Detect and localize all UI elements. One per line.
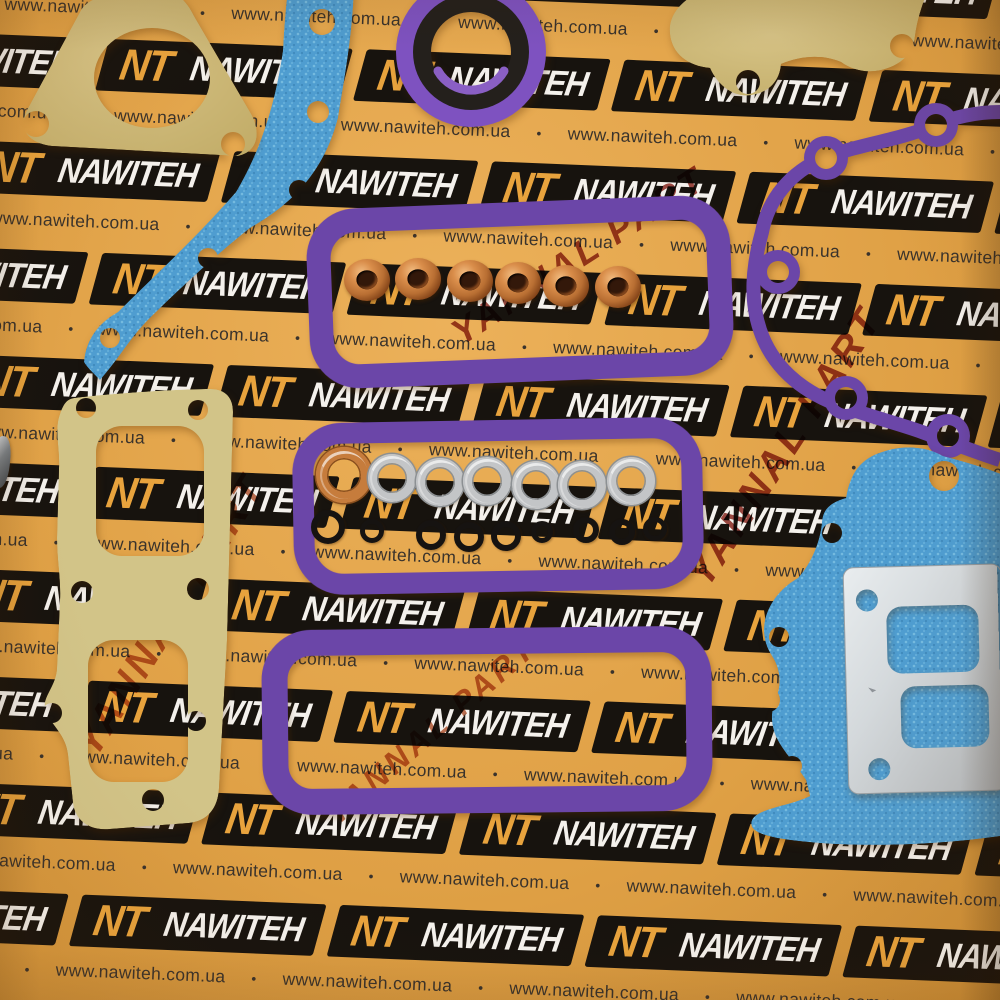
copper-dome-nut <box>595 266 641 308</box>
aluminum-washer <box>463 457 511 505</box>
nut-center-hole <box>607 277 628 296</box>
aluminum-washer <box>512 461 560 509</box>
aluminum-washer <box>368 454 416 502</box>
valve-cover-gasket-middle <box>292 416 705 595</box>
aluminum-washer <box>558 461 606 509</box>
oil-cooler-gasket-tan <box>30 380 250 840</box>
o-ring <box>360 519 384 543</box>
aluminum-washer <box>607 457 655 505</box>
o-ring <box>531 521 553 543</box>
aluminum-washer <box>416 458 464 506</box>
o-ring <box>416 520 446 550</box>
turbo-mount-plate-steel <box>840 550 1000 800</box>
pump-cover-gasket-purple <box>735 80 1000 480</box>
copper-dome-nut <box>395 258 441 300</box>
copper-dome-nut <box>543 265 589 307</box>
o-ring <box>609 519 635 545</box>
copper-dome-nut <box>495 262 541 304</box>
thermostat-gasket-tan <box>5 0 275 180</box>
o-ring <box>311 510 345 544</box>
metal-fragment <box>0 435 13 489</box>
oil-seal <box>391 0 551 134</box>
o-ring <box>573 517 599 543</box>
nut-center-hole <box>555 276 576 295</box>
nut-center-hole <box>507 273 528 292</box>
copper-dome-nut <box>344 259 390 301</box>
nut-center-hole <box>407 269 428 288</box>
o-ring <box>491 521 521 551</box>
parts-layer <box>0 0 1000 1000</box>
valve-cover-gasket-bottom <box>261 626 713 816</box>
o-ring <box>454 522 484 552</box>
gasket-kit-product-photo: NTNAWITEHNTNAWITEHNTNAWITEHNTNAWITEHNTNA… <box>0 0 1000 1000</box>
copper-washer <box>316 447 372 503</box>
o-ring <box>643 517 667 541</box>
nut-center-hole <box>356 270 377 289</box>
copper-dome-nut <box>447 260 493 302</box>
nut-center-hole <box>459 271 480 290</box>
